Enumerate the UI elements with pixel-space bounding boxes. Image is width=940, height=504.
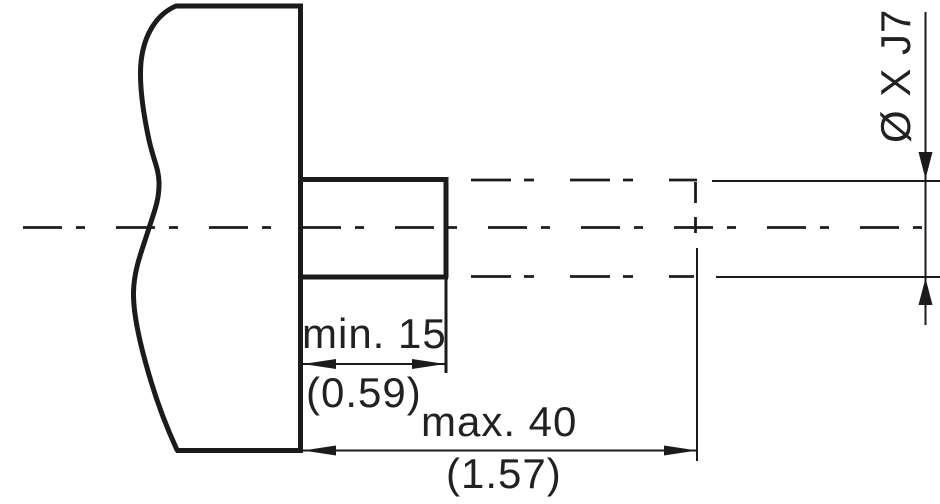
max40-arrow-right	[664, 446, 697, 456]
shaft-solid-lines	[712, 181, 940, 277]
dim-label-pilot-length-imperial: (0.59)	[306, 372, 422, 414]
diameter-arrow-down	[919, 152, 933, 179]
dim-label-overall-length-imperial: (1.57)	[446, 453, 562, 495]
max40-arrow-left	[303, 446, 336, 456]
dim-label-pilot-length-metric: min. 15	[302, 313, 447, 355]
diameter-arrow-up	[919, 278, 933, 305]
min15-arrow-left	[303, 359, 336, 369]
technical-drawing: min. 15 (0.59) max. 40 (1.57) Ø X J7	[0, 0, 940, 504]
dimension-diameter	[919, 12, 933, 325]
dim-label-bore-diameter: Ø X J7	[875, 9, 917, 143]
dimension-min15	[303, 359, 445, 369]
dim-label-overall-length-metric: max. 40	[421, 401, 577, 443]
min15-arrow-right	[412, 359, 445, 369]
